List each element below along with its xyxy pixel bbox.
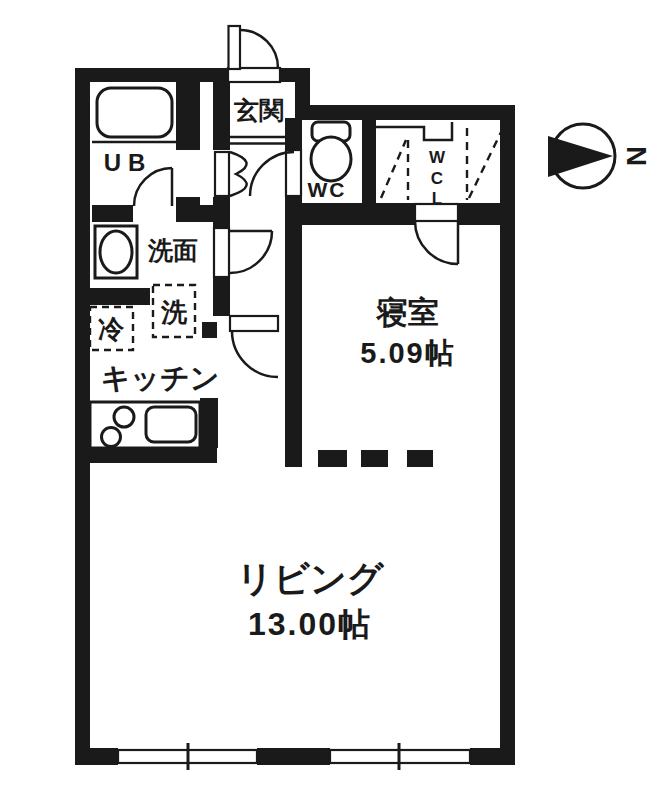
hall-kitchen-door: [230, 316, 278, 377]
wall-left: [75, 68, 90, 765]
wall-below-counter: [75, 448, 217, 463]
label-senmen: 洗面: [147, 236, 198, 264]
label-bedroom-size: 5.09帖: [360, 337, 455, 369]
wall-bottom-1: [75, 748, 118, 765]
label-wcl: W C L: [429, 148, 446, 208]
north-label: N: [621, 146, 652, 166]
wall-ub-bottom-left: [92, 205, 133, 222]
stove-burner-icon: [114, 407, 134, 427]
wall-hall-right-upper: [285, 118, 302, 150]
washbasin-bowl: [100, 231, 132, 273]
stove-burner-icon: [102, 428, 121, 447]
label-wc: WC: [308, 178, 347, 201]
wall-ub-bottom-right: [176, 205, 230, 222]
label-genkan: 玄関: [233, 96, 284, 124]
floor-plan-drawing: N 玄関 UB WC W C L 洗面 洗 冷 キッチン 寝室 5.09帖 リビ…: [0, 0, 666, 800]
label-wcl-l: L: [432, 189, 442, 208]
kitchen-sink-icon: [146, 407, 196, 442]
bathtub-icon: [97, 88, 172, 137]
bedroom-door: [415, 204, 458, 264]
compass-icon: N: [548, 124, 652, 188]
washbasin-icon: [95, 226, 137, 278]
washroom-door-arc: [230, 231, 272, 273]
label-wcl-w: W: [429, 148, 446, 167]
wcl-dashed-diagonal: [381, 140, 406, 198]
wall-hall-left-lower: [213, 277, 230, 316]
label-living-size: 13.00帖: [248, 606, 372, 642]
ub-door: [134, 168, 175, 221]
floor-plan-page: N 玄関 UB WC W C L 洗面 洗 冷 キッチン 寝室 5.09帖 リビ…: [0, 0, 666, 800]
toilet-bowl: [311, 137, 351, 181]
entrance-door-arc: [240, 30, 278, 68]
wall-top-left: [75, 68, 228, 82]
partition-dash: [361, 450, 388, 467]
wcl-shelf-line: [376, 122, 452, 140]
partition-dash: [318, 450, 347, 467]
hall-kitchen-door-arc: [232, 331, 278, 377]
partition-dash: [407, 450, 433, 467]
hall-kitchen-door-leaf: [230, 316, 278, 331]
wall-hall-left-upper: [213, 82, 230, 150]
label-ub: UB: [104, 149, 153, 176]
wall-stub: [202, 322, 217, 338]
wc-door: [250, 150, 301, 196]
ub-folding-door-leaf: [215, 152, 229, 196]
wall-top-right: [295, 105, 515, 120]
label-wcl-c: C: [431, 169, 443, 188]
genkan-step: [230, 137, 293, 144]
wall-kitchen-pillar: [200, 398, 218, 448]
entrance-door-leaf: [229, 26, 241, 69]
wall-ub-right-upper: [176, 82, 200, 150]
ub-door-gap: [134, 206, 175, 221]
washroom-door-leaf: [214, 228, 229, 277]
wall-senmen-kitchen: [75, 288, 150, 305]
ub-folding-door-arcs: [230, 152, 247, 196]
washroom-door: [214, 228, 272, 277]
label-kitchen: キッチン: [101, 362, 220, 394]
wc-door-leaf: [286, 150, 301, 196]
label-bedroom: 寝室: [375, 295, 439, 330]
wcl-dashed-diagonal: [469, 124, 505, 198]
bedroom-door-arc: [415, 221, 458, 264]
wall-bedroom-top-right: [458, 203, 515, 225]
room-labels: 玄関 UB WC W C L 洗面 洗 冷 キッチン 寝室 5.09帖 リビング…: [98, 96, 456, 642]
kitchen-counter: [90, 402, 200, 448]
partition-dashes: [318, 450, 433, 467]
label-living: リビング: [236, 558, 385, 599]
ub-folding-door: [176, 150, 247, 197]
wall-bedroom-top-left: [285, 203, 415, 225]
entrance-door: [228, 26, 280, 82]
wall-wc-wcl-divider: [362, 118, 376, 203]
toilet-icon: [311, 122, 351, 181]
wall-bottom-3: [470, 748, 515, 765]
wall-bedroom-left: [285, 196, 302, 467]
wall-bottom-2: [257, 748, 330, 765]
label-washer: 洗: [160, 297, 188, 327]
label-fridge: 冷: [98, 314, 125, 344]
